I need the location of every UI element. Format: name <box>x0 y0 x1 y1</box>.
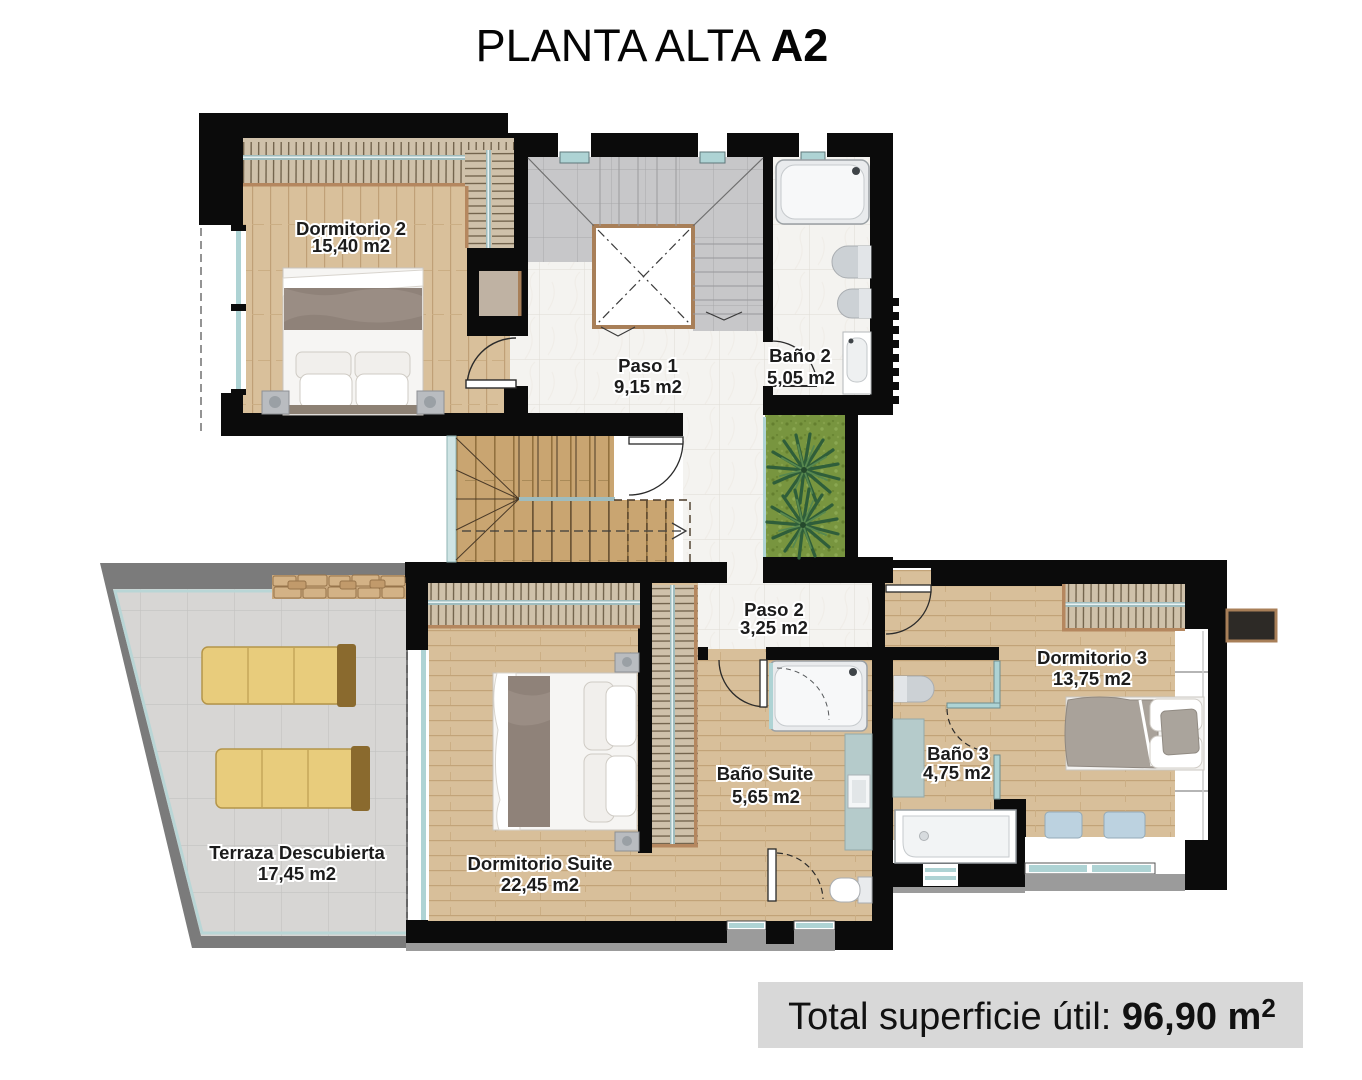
svg-text:Total superficie útil: 96,90 m: Total superficie útil: 96,90 m2 <box>788 993 1276 1038</box>
svg-text:5,65 m2: 5,65 m2 <box>732 786 800 807</box>
svg-text:Baño Suite: Baño Suite <box>717 763 814 784</box>
svg-text:22,45 m2: 22,45 m2 <box>501 874 579 895</box>
svg-text:PLANTA ALTA A2: PLANTA ALTA A2 <box>476 20 829 71</box>
svg-text:17,45 m2: 17,45 m2 <box>258 863 336 884</box>
svg-text:4,75 m2: 4,75 m2 <box>923 762 991 783</box>
svg-text:5,05 m2: 5,05 m2 <box>767 367 835 388</box>
svg-text:Terraza Descubierta: Terraza Descubierta <box>209 842 385 863</box>
svg-text:Baño 3: Baño 3 <box>927 743 989 764</box>
svg-text:3,25 m2: 3,25 m2 <box>740 617 808 638</box>
svg-text:Dormitorio 3: Dormitorio 3 <box>1037 647 1147 668</box>
svg-text:15,40 m2: 15,40 m2 <box>312 235 390 256</box>
svg-text:Baño 2: Baño 2 <box>769 345 831 366</box>
svg-text:Paso 1: Paso 1 <box>618 355 678 376</box>
svg-text:13,75 m2: 13,75 m2 <box>1053 668 1131 689</box>
svg-text:Dormitorio Suite: Dormitorio Suite <box>468 853 613 874</box>
svg-text:9,15 m2: 9,15 m2 <box>614 376 682 397</box>
